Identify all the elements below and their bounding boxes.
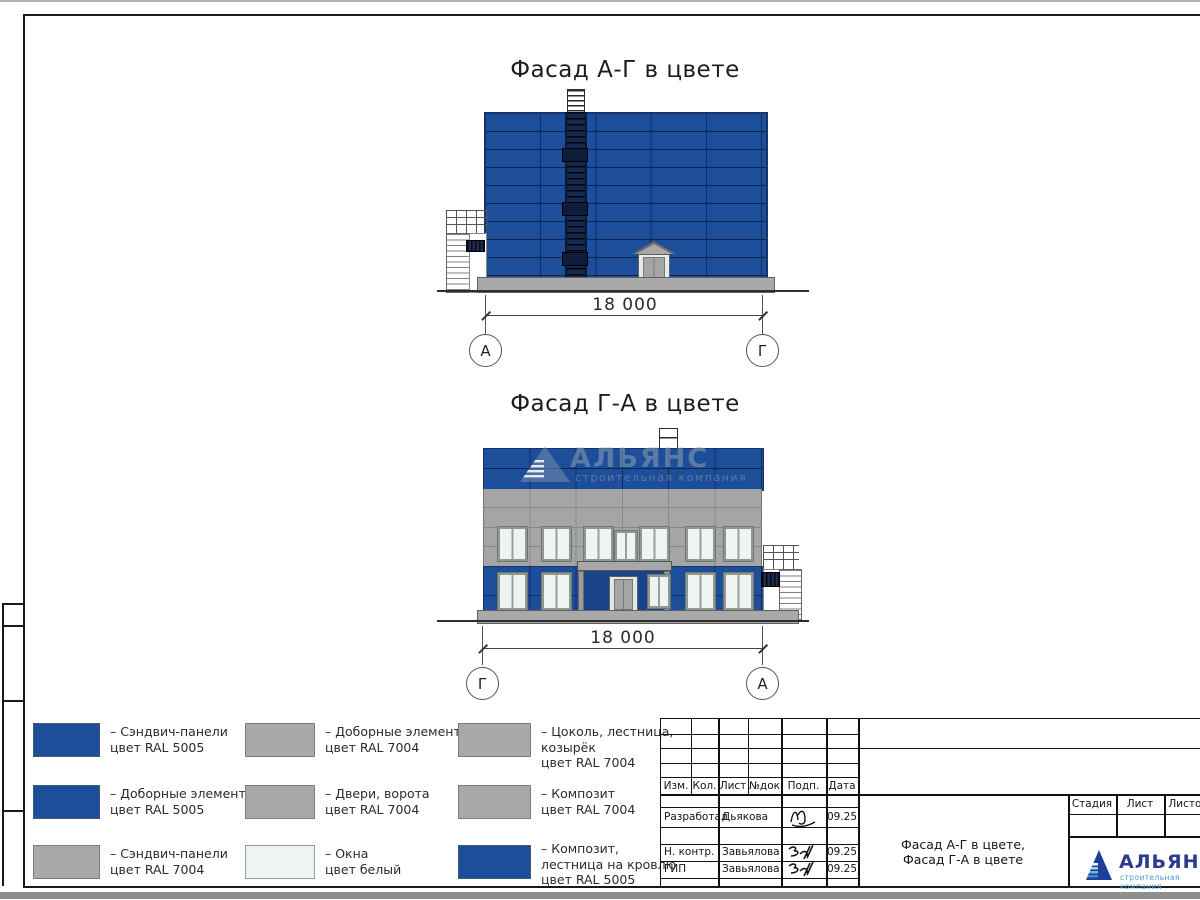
tb-name: Завьялова <box>722 844 780 861</box>
facade-1-title: Фасад А-Г в цвете <box>430 57 820 83</box>
legend-label: цвет RAL 7004 <box>541 755 673 771</box>
legend-swatch <box>245 785 315 819</box>
tb-date: 09.25 <box>826 844 858 861</box>
axis-letter: Г <box>758 342 767 360</box>
tb-line <box>1068 814 1200 815</box>
legend-swatch <box>33 723 100 757</box>
tb-col-header: Лист <box>718 778 748 794</box>
tb-doc-title-line: Фасад Г-А в цвете <box>858 852 1068 867</box>
dimension-line <box>483 648 763 649</box>
axis-letter: Г <box>478 675 487 693</box>
legend-swatch <box>33 785 100 819</box>
legend-swatch <box>458 723 531 757</box>
legend-swatch <box>458 785 531 819</box>
legend-label: – Окна <box>325 846 401 862</box>
axis-letter: А <box>480 342 490 360</box>
legend-item: – Композит,лестница на кровлюцвет RAL 50… <box>458 840 676 888</box>
facade-2-ground-line <box>437 620 809 622</box>
tb-doc-title-line: Фасад А-Г в цвете, <box>858 837 1068 852</box>
window-small <box>648 575 670 608</box>
watermark-subtitle: строительная компания <box>575 471 747 484</box>
legend-swatch <box>458 845 531 879</box>
legend-label: – Доборные элементы <box>325 724 471 740</box>
ladder-platform <box>562 148 588 162</box>
legend-item: – Сэндвич-панелицвет RAL 5005 <box>33 723 228 757</box>
company-logo-pyramid-icon <box>1085 849 1113 881</box>
margin-cell-line <box>2 603 4 886</box>
company-logo-subtitle: строительная компания <box>1120 873 1200 891</box>
facade-2-door-frame <box>609 576 638 614</box>
company-logo-name: АЛЬЯНС <box>1119 851 1200 873</box>
legend-item: – Доборные элементыцвет RAL 5005 <box>33 785 256 819</box>
ladder-platform <box>562 252 588 266</box>
tb-doc-title: Фасад А-Г в цвете, Фасад Г-А в цвете <box>858 837 1068 867</box>
margin-cell-line <box>2 603 23 605</box>
legend-swatch <box>245 723 315 757</box>
facade-2-stair-railing <box>763 545 799 570</box>
legend-item: – Цоколь, лестница,козырёкцвет RAL 7004 <box>458 723 673 771</box>
title-block: Изм. Кол. Лист №док Подп. Дата Разработа… <box>660 718 1200 886</box>
facade-2-stair-hatch <box>761 572 780 587</box>
margin-cell-line <box>2 625 23 627</box>
tb-stage-header: Лист <box>1116 796 1164 813</box>
tb-name: Завьялова <box>722 861 780 878</box>
dimension-value: 18 000 <box>535 295 715 315</box>
legend-item: – Сэндвич-панелицвет RAL 7004 <box>33 845 228 879</box>
legend-label: козырёк <box>541 740 673 756</box>
canopy-column <box>578 571 584 612</box>
axis-letter: А <box>757 675 767 693</box>
legend-label: – Двери, ворота <box>325 786 430 802</box>
window <box>542 527 571 561</box>
legend-label: – Сэндвич-панели <box>110 724 228 740</box>
legend-swatch <box>33 845 100 879</box>
legend-label: цвет RAL 7004 <box>541 802 635 818</box>
page-top-edge <box>0 0 1200 2</box>
facade-2-door-leaf <box>614 579 633 610</box>
legend-label: цвет RAL 5005 <box>110 802 256 818</box>
legend-label: цвет RAL 5005 <box>541 872 676 888</box>
entrance-pediment <box>636 244 672 254</box>
legend-label: – Доборные элементы <box>110 786 256 802</box>
facade-1-stair-railing <box>446 210 488 234</box>
tb-line <box>1068 836 1200 838</box>
tb-col-header: Дата <box>826 778 858 794</box>
window <box>724 527 753 561</box>
extension-line <box>762 626 763 665</box>
legend-label: цвет RAL 7004 <box>325 740 471 756</box>
legend-label: лестница на кровлю <box>541 857 676 873</box>
signature-icon <box>787 805 823 829</box>
window <box>686 573 715 610</box>
facade-1-ground-line <box>437 290 809 292</box>
legend-label: цвет RAL 7004 <box>325 802 430 818</box>
tb-line <box>661 878 858 879</box>
legend-item: – Доборные элементыцвет RAL 7004 <box>245 723 471 757</box>
tb-stage-header: Листов <box>1164 796 1200 813</box>
watermark-pyramid-icon <box>520 446 570 482</box>
ladder-platform <box>562 202 588 216</box>
window <box>724 573 753 610</box>
tb-col-header: Кол. <box>691 778 718 794</box>
tb-role: Н. контр. <box>664 844 719 861</box>
entrance-canopy <box>577 561 672 571</box>
facade-1-wall <box>484 112 768 282</box>
tb-line <box>661 734 858 735</box>
legend-item: – Композитцвет RAL 7004 <box>458 785 635 819</box>
window <box>686 527 715 561</box>
dimension-line <box>486 315 763 316</box>
axis-marker: Г <box>466 667 499 700</box>
legend-label: цвет RAL 7004 <box>110 862 228 878</box>
window <box>584 527 613 561</box>
margin-cell-line <box>2 700 23 702</box>
legend-label: – Цоколь, лестница, <box>541 724 673 740</box>
tb-col-header: Подп. <box>781 778 826 794</box>
axis-marker: А <box>469 334 502 367</box>
facade-2-title: Фасад Г-А в цвете <box>430 391 820 417</box>
legend-swatch <box>245 845 315 879</box>
signature-icon <box>785 860 821 878</box>
facade-1-stair-hatch <box>466 240 485 252</box>
watermark-name: АЛЬЯНС <box>570 443 709 474</box>
legend-label: – Композит <box>541 786 635 802</box>
window <box>640 527 669 561</box>
tb-stage-header: Стадия <box>1068 796 1116 813</box>
page-bottom-edge <box>0 892 1200 899</box>
signature-icon <box>785 843 821 861</box>
legend-label: – Сэндвич-панели <box>110 846 228 862</box>
legend-item: – Двери, воротацвет RAL 7004 <box>245 785 430 819</box>
legend-label: цвет RAL 5005 <box>110 740 228 756</box>
window-small <box>615 531 637 561</box>
legend-label: цвет белый <box>325 862 401 878</box>
window <box>498 573 527 610</box>
window <box>542 573 571 610</box>
axis-marker: Г <box>746 334 779 367</box>
legend-item: – Окнацвет белый <box>245 845 401 879</box>
dimension-value: 18 000 <box>533 628 713 648</box>
margin-cell-line <box>2 810 23 812</box>
axis-marker: А <box>746 667 779 700</box>
tb-date: 09.25 <box>826 807 858 827</box>
tb-col-header: №док <box>748 778 781 794</box>
tb-line <box>661 827 858 828</box>
extension-line <box>482 626 483 665</box>
window <box>498 527 527 561</box>
tb-role: Разработал <box>664 807 719 827</box>
legend-label: – Композит, <box>541 841 676 857</box>
tb-line <box>661 763 858 764</box>
tb-line <box>661 748 1200 749</box>
drawing-sheet: Фасад А-Г в цвете 18 000 А Г Фасад Г-А в… <box>0 0 1200 900</box>
tb-col-header: Изм. <box>661 778 691 794</box>
tb-name: Дьякова <box>722 807 780 827</box>
tb-date: 09.25 <box>826 861 858 878</box>
tb-role: ГИП <box>664 861 719 878</box>
